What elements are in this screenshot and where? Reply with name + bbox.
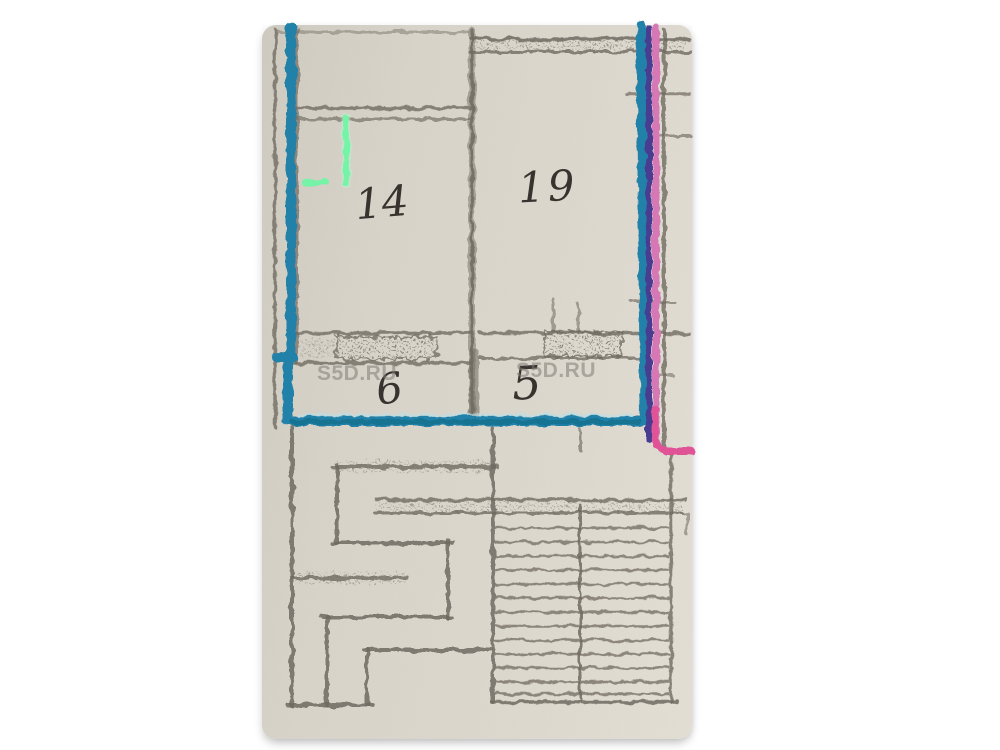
green-mark-vertical — [346, 118, 347, 184]
photo-canvas: 14 19 6 5 S5D.RU S5D.RU — [0, 0, 1000, 750]
watermark: S5D.RU — [516, 359, 596, 383]
floor-plan-drawing — [0, 0, 1000, 750]
room-label-19: 19 — [517, 164, 579, 209]
green-mark-dash — [305, 182, 326, 183]
watermark: S5D.RU — [317, 362, 397, 386]
room-label-14: 14 — [353, 180, 410, 226]
